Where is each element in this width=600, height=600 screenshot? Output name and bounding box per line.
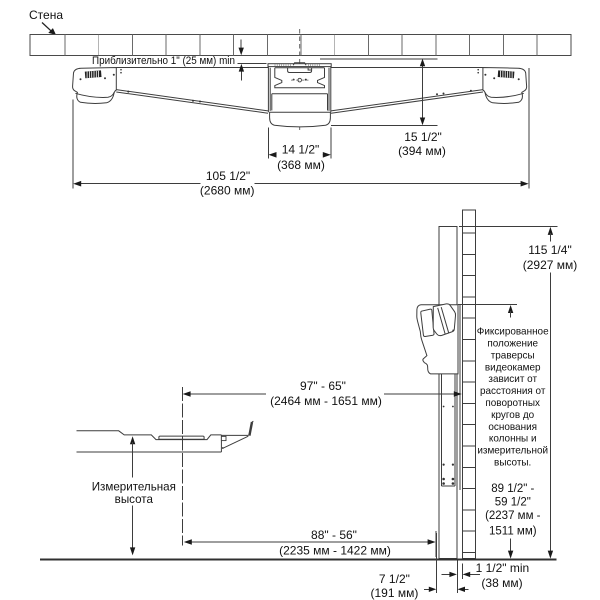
svg-text:(2235 мм - 1422 мм): (2235 мм - 1422 мм) (279, 543, 391, 557)
svg-text:Фиксированное: Фиксированное (477, 326, 549, 337)
svg-text:97" - 65": 97" - 65" (300, 379, 346, 393)
svg-text:положение: положение (487, 338, 538, 349)
svg-text:105 1/2": 105 1/2" (206, 169, 250, 183)
svg-text:59 1/2": 59 1/2" (495, 496, 531, 508)
svg-text:88" - 56": 88" - 56" (311, 528, 357, 542)
svg-text:15 1/2": 15 1/2" (404, 130, 442, 144)
svg-text:7 1/2": 7 1/2" (379, 572, 410, 586)
svg-text:(2680 мм): (2680 мм) (200, 184, 255, 198)
svg-text:(191 мм): (191 мм) (370, 586, 418, 600)
svg-text:кругов до: кругов до (491, 410, 534, 421)
svg-text:14 1/2": 14 1/2" (282, 142, 320, 156)
svg-text:Приблизительно 1" (25 мм) min: Приблизительно 1" (25 мм) min (92, 55, 235, 67)
svg-text:(394 мм): (394 мм) (398, 144, 446, 158)
svg-text:видеокамер: видеокамер (485, 362, 541, 373)
svg-text:(2927 мм): (2927 мм) (523, 258, 578, 272)
svg-text:Стена: Стена (29, 8, 63, 22)
svg-text:1 1/2" min: 1 1/2" min (476, 561, 530, 575)
svg-text:115 1/4": 115 1/4" (528, 243, 571, 257)
svg-text:89 1/2" -: 89 1/2" - (491, 483, 534, 495)
svg-text:траверсы: траверсы (491, 350, 535, 361)
svg-text:поворотных: поворотных (485, 398, 540, 409)
svg-text:зависит от: зависит от (488, 374, 537, 385)
svg-text:расстояния от: расстояния от (480, 386, 546, 397)
svg-text:(2237 мм -: (2237 мм - (485, 510, 541, 522)
svg-text:колонны и: колонны и (489, 434, 537, 445)
svg-text:Измерительная: Измерительная (92, 480, 176, 493)
svg-text:1511 мм): 1511 мм) (489, 526, 537, 538)
svg-text:основания: основания (488, 422, 537, 433)
svg-text:(368 мм): (368 мм) (277, 158, 325, 172)
svg-text:измерительной: измерительной (477, 445, 548, 456)
svg-text:(2464 мм - 1651 мм): (2464 мм - 1651 мм) (270, 394, 382, 408)
svg-text:высоты.: высоты. (494, 457, 531, 468)
svg-text:(38 мм): (38 мм) (481, 576, 522, 590)
svg-text:высота: высота (115, 493, 154, 506)
